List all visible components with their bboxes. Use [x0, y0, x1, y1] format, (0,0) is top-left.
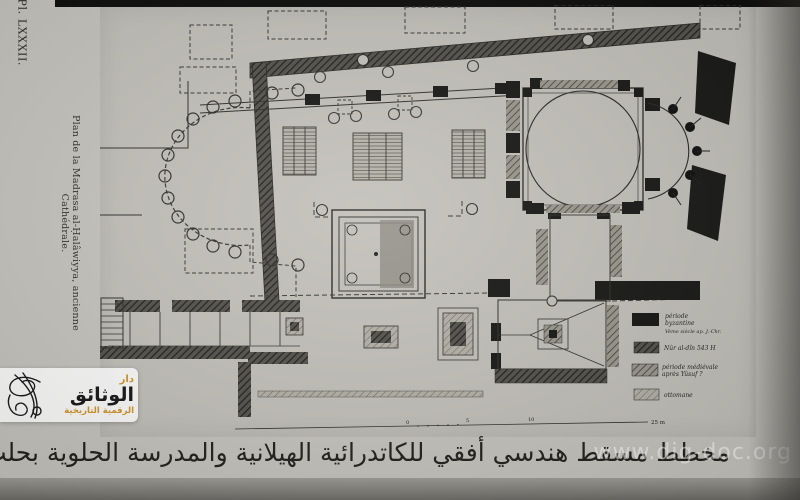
- legend-label: Vème siècle ap. J.-Chr.: [665, 328, 722, 335]
- west-facade-lines: [100, 81, 188, 215]
- wall-niche: [547, 296, 557, 306]
- scale-end-label: 25 m: [651, 420, 666, 426]
- courtyard-pool: [332, 210, 425, 298]
- legend-label: période médiévale: [662, 364, 719, 371]
- plate-number: Pl. LXXXII.: [16, 0, 29, 119]
- legend: période byzantine Vème siècle ap. J.-Chr…: [632, 313, 722, 400]
- archive-logo: دار الوثائق الرقمية التاريخية: [0, 368, 138, 422]
- floor-plan-drawing: période byzantine Vème siècle ap. J.-Chr…: [100, 5, 760, 435]
- scale-bar: 0 5 10 25 m: [235, 417, 666, 429]
- scanned-book-plate: Pl. LXXXII. Plan de la Madrasa al-Ḥalâwi…: [0, 0, 800, 500]
- logo-line-3: الرقمية التاريخية: [58, 407, 134, 416]
- scale-tick: 5: [466, 418, 469, 424]
- logo-line-2: الوثائق: [58, 386, 134, 405]
- prayer-mats: [283, 127, 485, 180]
- wall-niche: [358, 55, 369, 66]
- tughra-calligraphy-icon: [0, 369, 52, 421]
- garden-structures: [286, 308, 478, 360]
- legend-label: Nûr al-dîn 543 H: [663, 345, 716, 352]
- page-edge-shadow: [748, 0, 800, 500]
- dome-circle: [526, 91, 640, 207]
- prayer-hall: [495, 296, 607, 383]
- archive-logo-text: دار الوثائق الرقمية التاريخية: [52, 375, 138, 416]
- legend-label: ottomane: [664, 392, 693, 399]
- legend-swatch-ottoman: [634, 389, 659, 400]
- stylobate: [200, 61, 520, 124]
- legend-swatch-byzantine: [632, 313, 659, 326]
- scale-tick: 0: [406, 420, 409, 426]
- scale-tick: 10: [528, 417, 534, 423]
- dome-hall: [523, 88, 643, 210]
- margin-caption-french: Plan de la Madrasa al-Ḥalâwiyya, ancienn…: [59, 115, 81, 331]
- north-wall: [250, 23, 700, 78]
- photo-edge-bottom: [0, 478, 800, 500]
- legend-swatch-nur-al-din: [634, 342, 659, 353]
- legend-label: période: [665, 313, 689, 320]
- south-cells: [100, 300, 483, 417]
- wall-niche: [583, 35, 594, 46]
- exedra-columns: [159, 84, 304, 271]
- legend-swatch-medieval: [632, 364, 658, 376]
- legend-label: byzantine: [665, 320, 695, 327]
- legend-label: après Yûsuf ?: [662, 371, 703, 378]
